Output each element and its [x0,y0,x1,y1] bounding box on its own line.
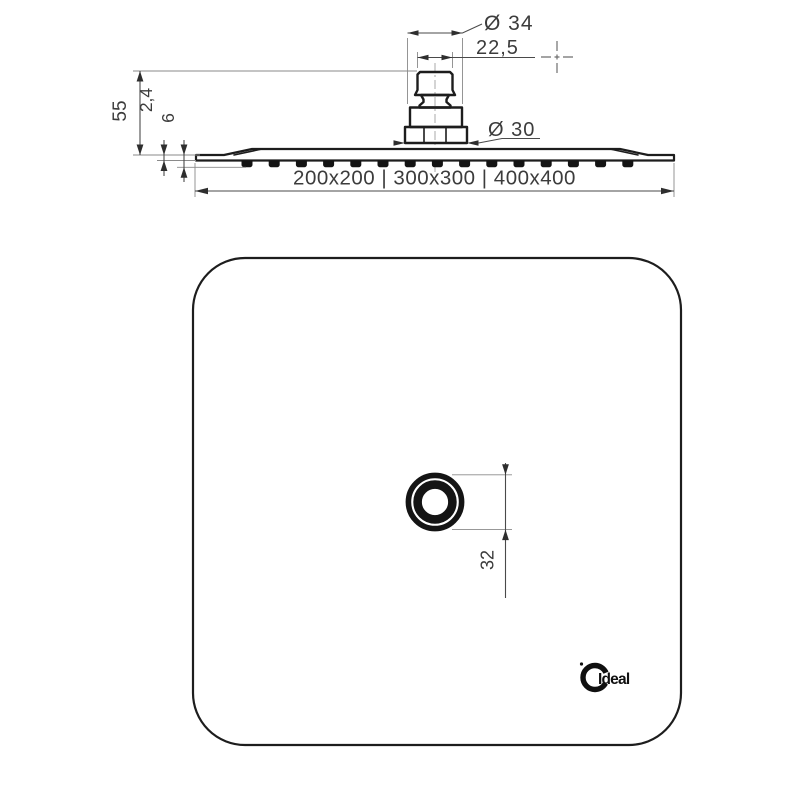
technical-drawing: Ø 34 22,5 Ø 30 55 [0,0,800,800]
overall-sizes-label: 200x200 | 300x300 | 400x400 [293,167,576,190]
dim-inlet-diameter-label: Ø 34 [484,12,534,35]
dim-plate-thickness-label: 2,4 [136,88,156,113]
side-view: Ø 34 22,5 Ø 30 55 [110,12,674,197]
drawing-page: Ø 34 22,5 Ø 30 55 [0,0,800,800]
dim-outlet-label: 32 [478,550,498,570]
dim-inlet-width-label: 22,5 [476,37,519,59]
nozzle [241,161,252,168]
dim-plate-thickness: 2,4 [136,88,196,176]
connector-block [410,108,462,128]
mounting-nut [405,127,467,143]
dim-plate-with-nozzles: 6 [158,113,246,182]
shower-plate [196,149,674,161]
center-mark-icon [541,41,573,73]
dim-plate-with-nozzles-label: 6 [158,113,178,123]
dim-total-height: 55 [110,71,417,155]
dim-total-height-label: 55 [110,100,131,121]
nozzle [269,161,280,168]
nozzle [622,161,633,168]
dim-connector-diameter-label: Ø 30 [488,119,535,141]
brand-label: Ideal [598,671,630,688]
nozzle [595,161,606,168]
plan-view: 32 Ideal [193,258,681,745]
logo-dot [580,662,583,665]
dim-overall-sizes: 200x200 | 300x300 | 400x400 [195,163,674,197]
